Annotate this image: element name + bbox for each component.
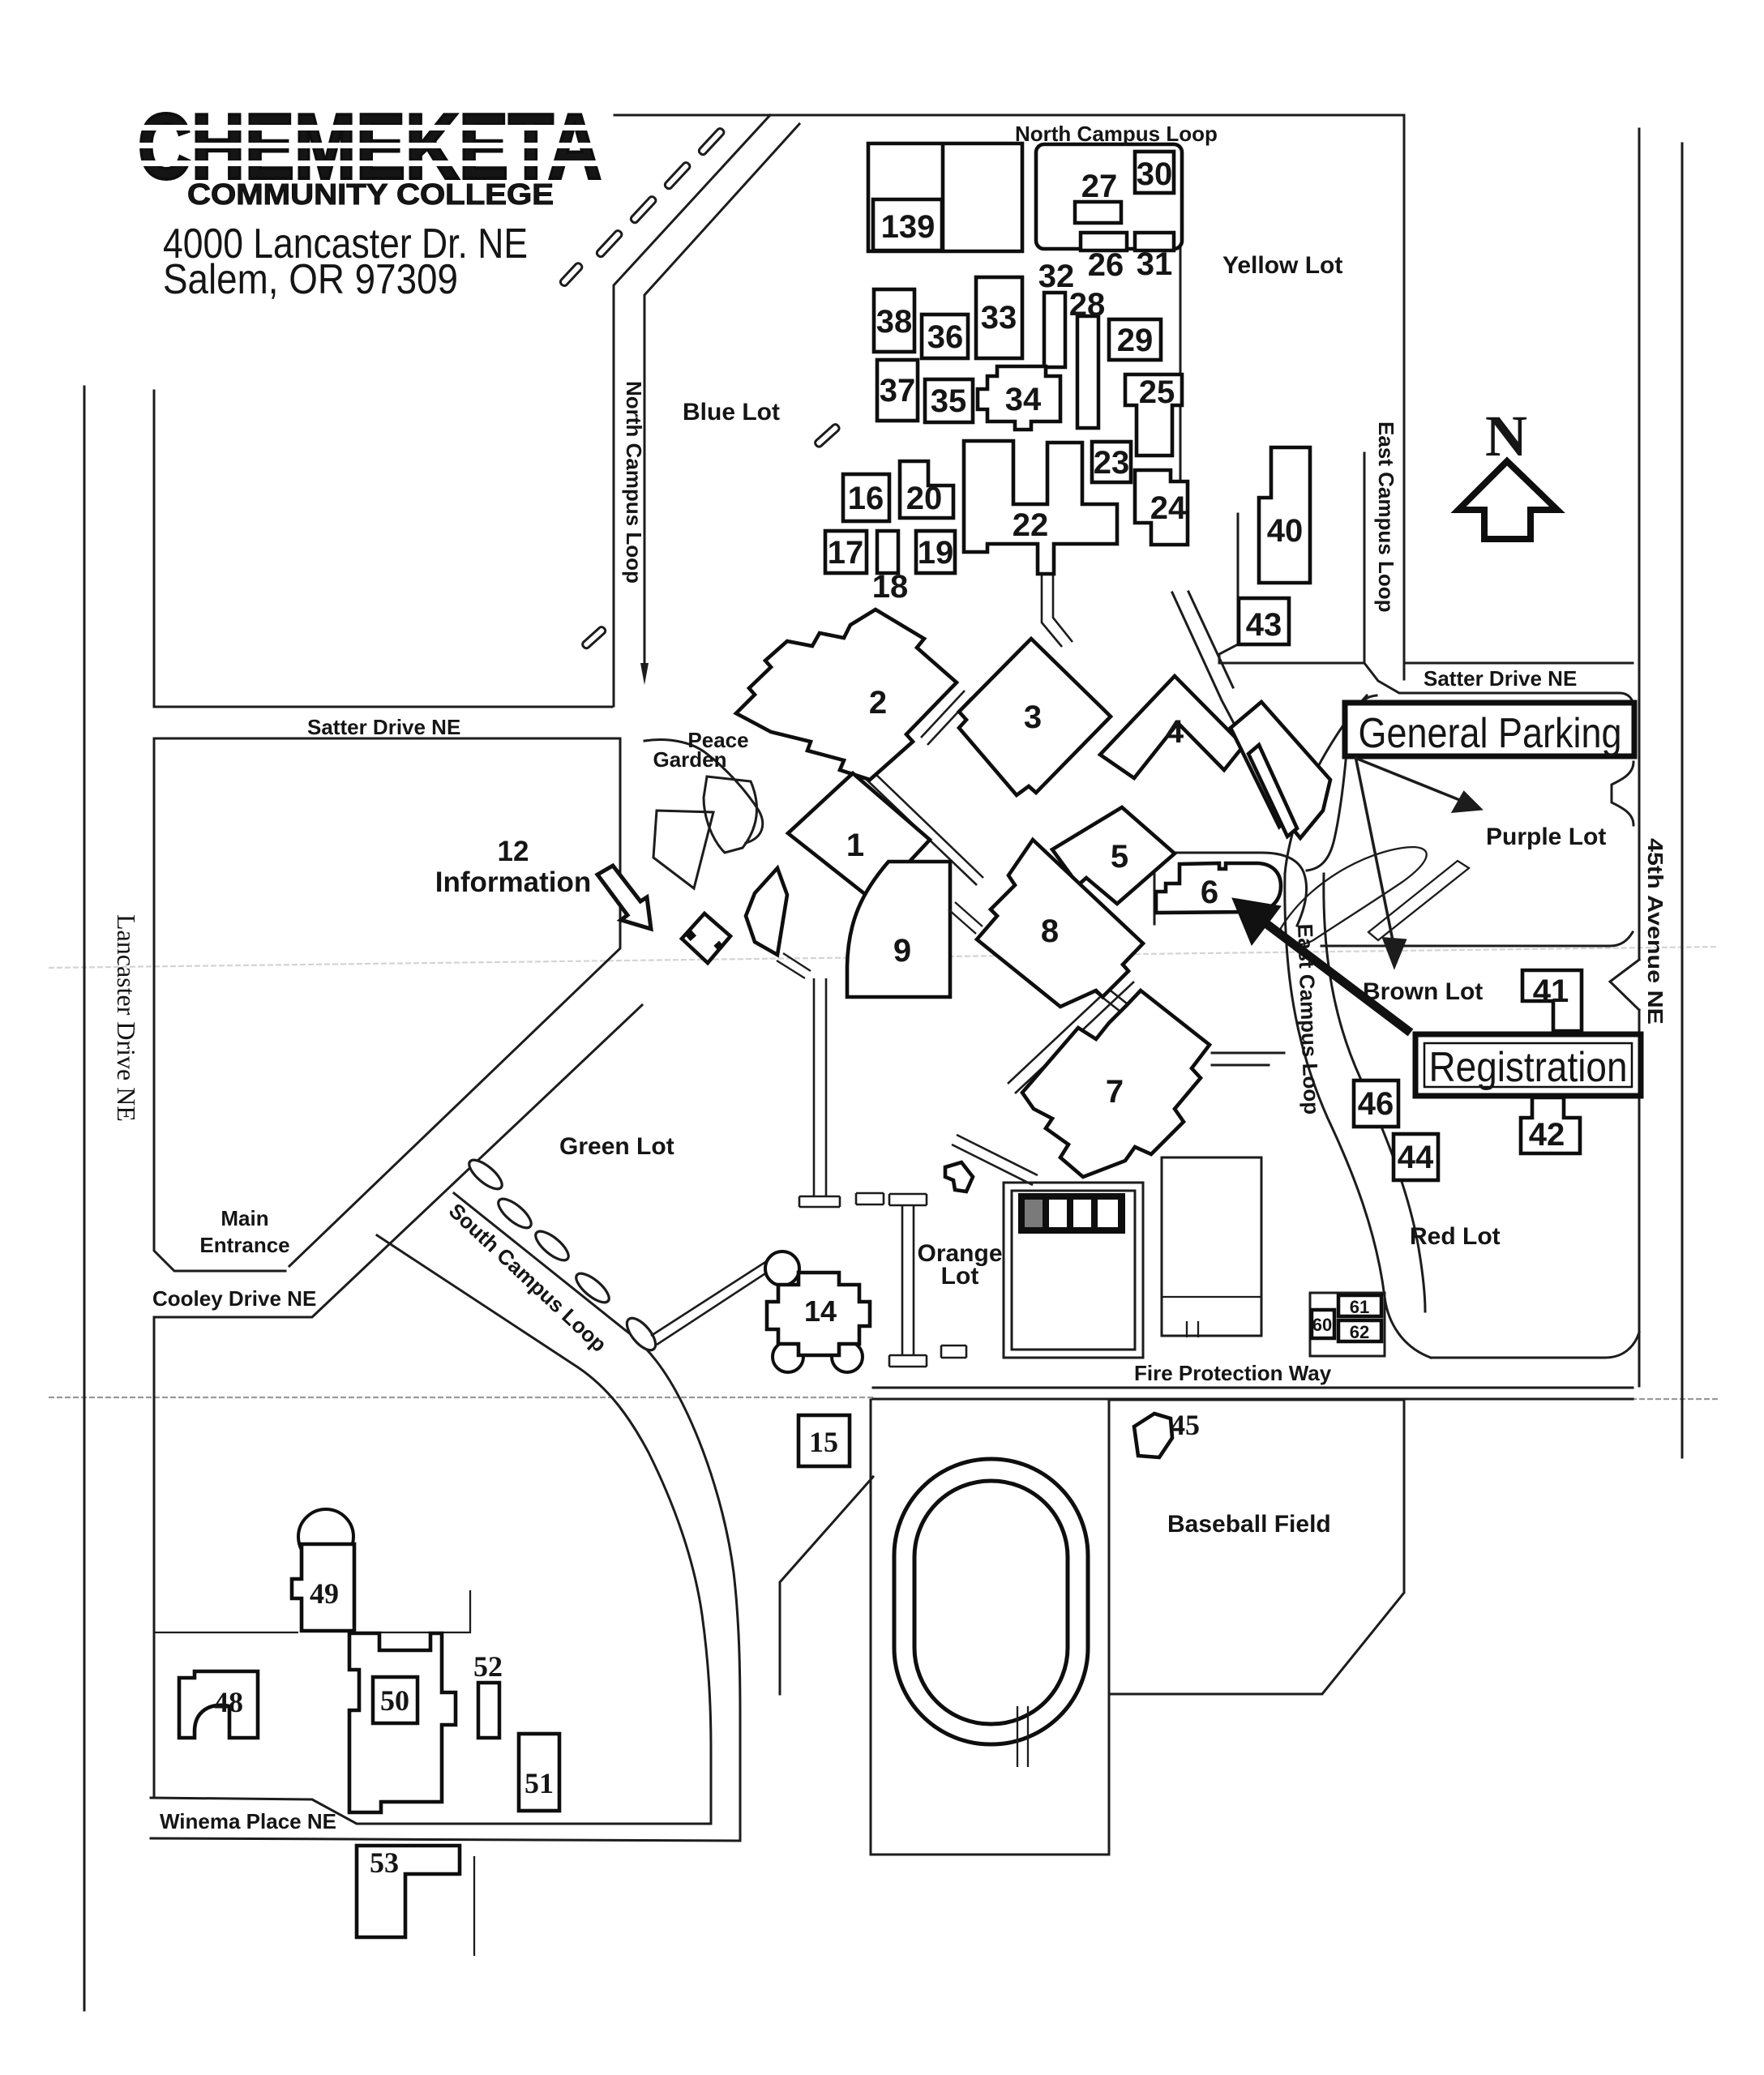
svg-text:6: 6 <box>1201 875 1218 910</box>
svg-text:28: 28 <box>1069 287 1106 323</box>
svg-text:General Parking: General Parking <box>1359 710 1622 757</box>
svg-text:East Campus Loop: East Campus Loop <box>1374 421 1398 612</box>
svg-text:45th Avenue NE: 45th Avenue NE <box>1643 838 1668 1025</box>
svg-text:52: 52 <box>473 1650 503 1683</box>
svg-text:12: 12 <box>498 836 529 867</box>
svg-text:22: 22 <box>1013 507 1049 543</box>
svg-text:36: 36 <box>927 319 964 355</box>
svg-text:31: 31 <box>1137 246 1173 282</box>
svg-text:4: 4 <box>1166 714 1184 750</box>
svg-text:Brown Lot: Brown Lot <box>1363 978 1483 1005</box>
svg-text:49: 49 <box>310 1577 339 1610</box>
svg-text:46: 46 <box>1358 1086 1394 1122</box>
svg-text:Registration: Registration <box>1429 1044 1628 1091</box>
svg-text:33: 33 <box>981 300 1017 336</box>
svg-text:1: 1 <box>846 828 864 863</box>
svg-text:41: 41 <box>1533 973 1569 1009</box>
svg-text:Blue Lot: Blue Lot <box>683 399 780 426</box>
svg-text:Main: Main <box>220 1206 268 1230</box>
svg-text:Winema Place NE: Winema Place NE <box>160 1809 336 1833</box>
svg-text:53: 53 <box>370 1846 399 1879</box>
svg-text:5: 5 <box>1111 839 1128 875</box>
svg-text:27: 27 <box>1081 169 1118 204</box>
svg-text:15: 15 <box>809 1426 838 1458</box>
svg-text:48: 48 <box>214 1686 243 1718</box>
svg-text:62: 62 <box>1350 1322 1369 1342</box>
svg-text:38: 38 <box>876 304 913 340</box>
svg-text:8: 8 <box>1041 913 1059 949</box>
svg-text:35: 35 <box>931 383 967 419</box>
svg-text:North Campus Loop: North Campus Loop <box>622 381 646 584</box>
svg-text:42: 42 <box>1529 1117 1565 1153</box>
svg-text:29: 29 <box>1117 323 1154 358</box>
svg-text:139: 139 <box>881 209 936 245</box>
svg-text:Entrance: Entrance <box>199 1233 289 1257</box>
svg-text:16: 16 <box>848 481 884 516</box>
svg-text:40: 40 <box>1267 513 1304 549</box>
svg-text:23: 23 <box>1094 445 1130 481</box>
svg-text:Lancaster Drive NE: Lancaster Drive NE <box>112 914 141 1122</box>
svg-text:61: 61 <box>1350 1297 1369 1317</box>
svg-text:7: 7 <box>1106 1074 1124 1110</box>
svg-text:30: 30 <box>1137 156 1173 192</box>
svg-text:34: 34 <box>1005 382 1042 417</box>
svg-text:20: 20 <box>906 481 943 516</box>
svg-text:37: 37 <box>880 373 916 409</box>
svg-text:44: 44 <box>1398 1140 1434 1175</box>
svg-text:Information: Information <box>435 866 591 898</box>
svg-text:14: 14 <box>804 1294 837 1328</box>
svg-text:Satter Drive NE: Satter Drive NE <box>307 715 460 739</box>
svg-text:Fire Protection Way: Fire Protection Way <box>1134 1361 1332 1385</box>
svg-text:COMMUNITY COLLEGE: COMMUNITY COLLEGE <box>187 178 554 211</box>
svg-text:24: 24 <box>1150 490 1187 526</box>
svg-text:51: 51 <box>524 1767 554 1799</box>
svg-text:19: 19 <box>918 535 954 571</box>
svg-text:Cooley Drive NE: Cooley Drive NE <box>152 1286 316 1311</box>
svg-text:25: 25 <box>1139 374 1175 410</box>
svg-text:Yellow Lot: Yellow Lot <box>1222 252 1342 279</box>
svg-text:Satter Drive NE: Satter Drive NE <box>1424 666 1577 691</box>
svg-text:North Campus Loop: North Campus Loop <box>1015 122 1218 146</box>
svg-text:50: 50 <box>380 1684 409 1717</box>
svg-text:Green Lot: Green Lot <box>559 1133 674 1160</box>
svg-text:Lot: Lot <box>941 1263 979 1290</box>
svg-text:26: 26 <box>1088 247 1124 283</box>
svg-text:60: 60 <box>1312 1315 1332 1335</box>
svg-text:17: 17 <box>828 535 864 571</box>
svg-text:43: 43 <box>1246 607 1282 643</box>
svg-text:2: 2 <box>869 685 887 721</box>
svg-text:Baseball Field: Baseball Field <box>1167 1511 1331 1538</box>
svg-text:45: 45 <box>1171 1409 1200 1441</box>
svg-text:18: 18 <box>872 569 909 605</box>
svg-text:9: 9 <box>893 933 911 969</box>
svg-text:Purple Lot: Purple Lot <box>1486 824 1606 850</box>
svg-text:3: 3 <box>1024 700 1042 735</box>
svg-text:Red Lot: Red Lot <box>1410 1223 1501 1250</box>
svg-text:Salem, OR 97309: Salem, OR 97309 <box>163 256 458 303</box>
svg-text:Garden: Garden <box>653 747 726 772</box>
